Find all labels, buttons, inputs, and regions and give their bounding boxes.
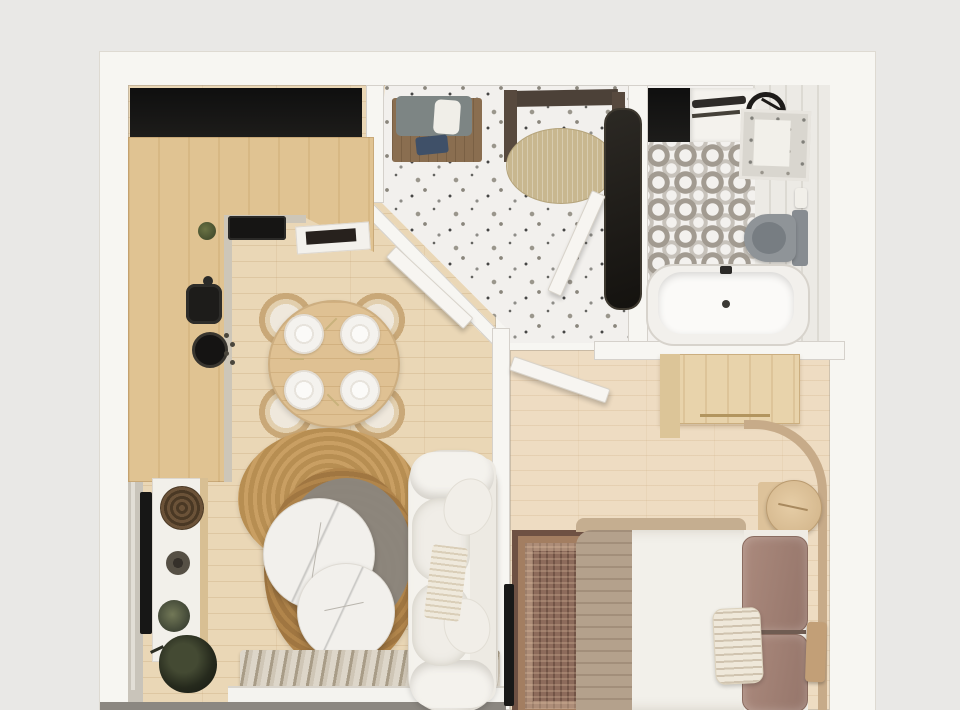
kitchen-dark-niche bbox=[130, 88, 362, 137]
bench-navy-blanket bbox=[415, 134, 449, 155]
kitchen-sink bbox=[186, 284, 222, 324]
wardrobe-handle bbox=[700, 414, 770, 417]
laundry-box-pad bbox=[753, 119, 791, 166]
floor-plan bbox=[0, 0, 960, 710]
toilet-paper-holder bbox=[795, 188, 807, 208]
place-setting bbox=[284, 370, 324, 410]
bathroom-dark-niche bbox=[642, 88, 690, 142]
stove-knob bbox=[230, 360, 235, 365]
counter-plant bbox=[198, 222, 216, 240]
floor-mirror bbox=[604, 108, 642, 310]
bench-pillow bbox=[433, 99, 461, 135]
woven-basket bbox=[160, 486, 204, 530]
stove-knob bbox=[230, 342, 235, 347]
wall-art bbox=[805, 622, 827, 683]
sink-faucet bbox=[203, 276, 213, 286]
place-setting bbox=[340, 370, 380, 410]
striped-pillow bbox=[712, 607, 764, 685]
decor-bowl bbox=[166, 551, 190, 575]
green-bowl bbox=[158, 600, 190, 632]
wall-mounted-tv bbox=[140, 492, 152, 634]
cooktop bbox=[228, 216, 286, 240]
bathtub-faucet bbox=[720, 266, 732, 274]
bathtub-drain bbox=[722, 300, 730, 308]
stove-burner bbox=[192, 332, 228, 368]
cutlery bbox=[360, 358, 374, 360]
window-left-glass bbox=[131, 470, 135, 690]
potted-plant bbox=[159, 635, 217, 693]
sofa-armrest bbox=[410, 660, 494, 708]
place-setting bbox=[340, 314, 380, 354]
stove-knob bbox=[224, 351, 229, 356]
toilet-seat bbox=[752, 222, 786, 254]
entry-door-frame-top bbox=[510, 89, 618, 107]
stove-knob bbox=[224, 333, 229, 338]
bedroom-tv bbox=[504, 584, 514, 706]
cutlery bbox=[290, 358, 304, 360]
place-setting bbox=[284, 314, 324, 354]
wardrobe-side-panel bbox=[660, 354, 680, 438]
bed-taupe-throw bbox=[576, 530, 632, 710]
